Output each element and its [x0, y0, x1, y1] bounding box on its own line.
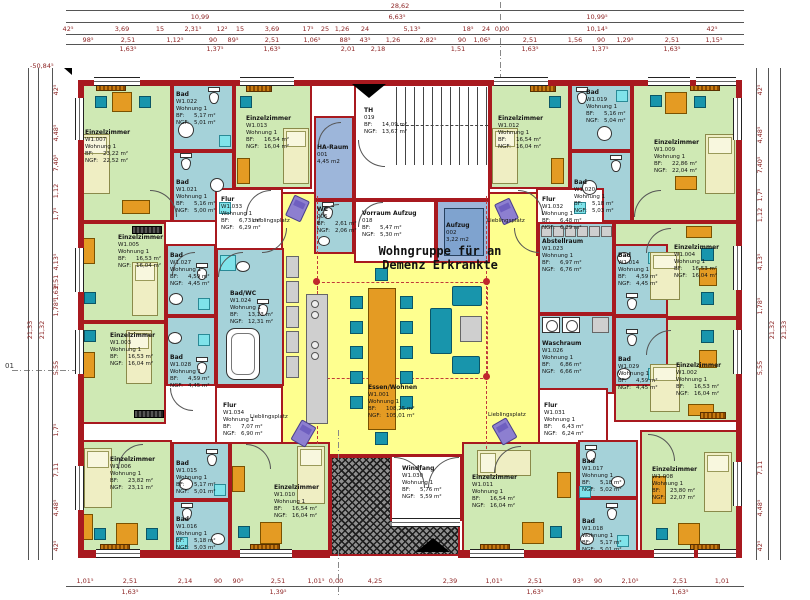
dimension-line [66, 44, 744, 45]
chair-icon [400, 321, 413, 334]
wardrobe-icon [122, 200, 150, 214]
lieblingsplatz-label: Lieblingsplatz [252, 218, 290, 224]
room-label: Aufzug0023,22 m2 [446, 222, 470, 244]
room-label-line: Wohnung 1 [230, 305, 273, 312]
room-label-line: 3,22 m2 [446, 237, 470, 244]
cooktop-icon [311, 300, 319, 308]
area-key: NGF: [544, 431, 558, 438]
shelf-icon [286, 331, 299, 353]
cooktop-icon [311, 352, 319, 360]
shelf-icon [601, 226, 612, 237]
room-label-line: Einzelzimmer [110, 456, 155, 464]
room-label-line: NGF:13,67 m² [364, 129, 407, 136]
dimension-text: 2,31⁵ [184, 25, 201, 33]
radiator-icon [700, 412, 726, 419]
room-label-line: NGF:5,00 m² [176, 208, 216, 215]
area-value: 5,01 m² [194, 120, 216, 127]
dimension-text: 3,69 [265, 25, 279, 33]
dimension-text: 10,99 [191, 13, 210, 21]
dimension-text: 1,06⁵ [473, 36, 490, 44]
room-label: WC006BF:2,61 m²NGF:2,06 m² [317, 206, 357, 235]
washing-machine-icon [542, 317, 560, 333]
room-label-line: NGF:105,01 m² [368, 413, 417, 420]
area-key: NGF: [176, 120, 190, 127]
room-label-line: Wohnung 1 [472, 489, 517, 496]
room-label-line: NGF:16,04 m² [246, 144, 291, 151]
area-key: BF: [654, 161, 668, 168]
room-label: FlurW1.033Wohnung 1BF:6,73 m²NGF:6,29 m² [221, 196, 261, 232]
dimension-text: 42⁵ [756, 85, 764, 96]
dimension-line [66, 22, 744, 23]
area-key: NGF: [223, 431, 237, 438]
dimension-text: 1,01⁵ [76, 577, 93, 585]
level-flag-icon [64, 68, 72, 75]
dimension-text: 42⁵ [52, 541, 60, 552]
exterior-wall [78, 80, 742, 86]
shelf-icon [286, 356, 299, 378]
area-value: 22,52 m² [103, 158, 128, 165]
area-key: NGF: [472, 503, 486, 510]
area-key: BF: [170, 376, 184, 383]
room-label-line: W1.024 [230, 298, 273, 305]
room-label-line: 4,45 m2 [317, 159, 348, 166]
room-label-line: W1.008 [652, 474, 697, 481]
room-label-line: W1.019 [586, 97, 626, 104]
dimension-text: 1,7⁵ [52, 424, 60, 437]
room-label-line: Einzelzimmer [676, 362, 721, 370]
area-key: BF: [110, 354, 124, 361]
dimension-text: 2,51 [528, 577, 542, 585]
room-label-line: NGF:16,04 m² [498, 144, 543, 151]
dimension-text: 2,51 [271, 577, 285, 585]
room-label-line: Flur [544, 402, 584, 410]
room-label-line: TH [364, 107, 407, 115]
chair-icon [375, 432, 388, 445]
sink-icon [318, 236, 330, 246]
dimension-text: 90 [594, 577, 602, 585]
column [483, 373, 490, 380]
axis-line [500, 2, 501, 82]
room-label-line: W1.033 [221, 204, 261, 211]
room-label-line: Bad/WC [230, 290, 273, 298]
dimension-text: 90 [214, 577, 222, 585]
room-label: Essen/WohnenW1.001Wohnung 1BF:108,25 m²N… [368, 384, 417, 420]
room-label-line: NGF:12,31 m² [230, 319, 273, 326]
room-label: EinzelzimmerW1.012Wohnung 1BF:16,54 m²NG… [498, 115, 543, 151]
room-label-line: NGF:4,45 m² [618, 281, 658, 288]
room-label-line: W1.020 [574, 187, 614, 194]
dimension-text: 1,63⁵ [526, 588, 543, 596]
room-label-line: NGF:16,04 m² [110, 361, 155, 368]
room-label-line: NGF:5,59 m² [402, 494, 442, 501]
room-label-line: Bad [176, 179, 216, 187]
area-value: 5,03 m² [592, 208, 614, 215]
area-key: NGF: [652, 495, 666, 502]
area-key: NGF: [674, 273, 688, 280]
area-key: NGF: [654, 168, 668, 175]
room-label-line: Einzelzimmer [652, 466, 697, 474]
dimension-text: 24 [361, 25, 369, 33]
room-label: EinzelzimmerW1.003Wohnung 1BF:16,53 m²NG… [110, 332, 155, 368]
room-label: Bad/WCW1.024Wohnung 1BF:13,13 m²NGF:12,3… [230, 290, 273, 326]
room-label: HA-Raum0014,45 m2 [317, 144, 348, 166]
dimension-text: 2,51 [265, 36, 279, 44]
area-value: 12,31 m² [248, 319, 273, 326]
area-value: 16,04 m² [292, 513, 317, 520]
area-value: 6,90 m² [241, 431, 263, 438]
area-key: NGF: [362, 232, 376, 239]
chair-icon [656, 528, 668, 540]
dimension-text: 21,33 [780, 321, 788, 340]
room-label-line: Wohnung 1 [674, 259, 719, 266]
room-label-line: HA-Raum [317, 144, 348, 152]
area-value: 105,01 m² [386, 413, 415, 420]
area-key: BF: [402, 487, 416, 494]
room-label-line: Bad [170, 354, 210, 362]
dimension-text: 88⁵ [340, 36, 351, 44]
wardrobe-icon [237, 158, 250, 184]
dimension-text: 15 [156, 25, 164, 33]
area-value: 22,07 m² [670, 495, 695, 502]
dimension-text: 6,63⁵ [388, 13, 405, 21]
dimension-text: 4,13⁵ [52, 253, 60, 270]
room-label: Vorraum Aufzug018BF:5,47 m²NGF:5,30 m² [362, 210, 417, 239]
dimension-text: 1,63⁵ [52, 283, 60, 300]
area-key: NGF: [176, 489, 190, 496]
room-label-line: Wohnung 1 [176, 194, 216, 201]
area-key: BF: [544, 424, 558, 431]
chair-icon [139, 96, 151, 108]
wardrobe-icon [116, 523, 138, 545]
window-icon [75, 330, 84, 374]
area-key: NGF: [246, 144, 260, 151]
chair-icon [549, 96, 561, 108]
area-key: BF: [110, 478, 124, 485]
room-label: BadW1.027Wohnung 1BF:4,59 m²NGF:4,45 m² [170, 252, 210, 288]
dimension-text: 90 [458, 36, 466, 44]
dimension-text: 90⁵ [233, 577, 244, 585]
room-label-line: W1.013 [246, 123, 291, 130]
dimension-text: 2,51 [123, 577, 137, 585]
chair-icon [95, 96, 107, 108]
area-key: NGF: [110, 485, 124, 492]
dimension-line [780, 68, 781, 560]
dimension-text: 1,37⁵ [591, 45, 608, 53]
window-icon [494, 77, 548, 86]
dimension-text: 17⁵ [303, 25, 314, 33]
chair-icon [84, 330, 96, 342]
room-label-line: Vorraum Aufzug [362, 210, 417, 218]
area-value: 4,45 m² [636, 281, 658, 288]
shower-icon [219, 135, 231, 147]
area-key: NGF: [542, 267, 556, 274]
shelf-icon [286, 256, 299, 278]
window-icon [733, 246, 742, 290]
room-label-line: Wohnung 1 [176, 106, 216, 113]
room-label-line: NGF:6,29 m² [542, 225, 582, 232]
dimension-text: 42⁵ [52, 85, 60, 96]
room-label-line: Bad [176, 91, 216, 99]
dimension-text: 10,14⁵ [586, 25, 607, 33]
area-value: 5,47 m² [380, 225, 402, 232]
window-icon [75, 98, 84, 140]
area-value: 16,04 m² [264, 144, 289, 151]
column [483, 278, 490, 285]
area-key: NGF: [618, 385, 632, 392]
area-value: 4,45 m² [188, 281, 210, 288]
room-label-line: Wohnung 1 [110, 347, 155, 354]
chair-icon [350, 346, 363, 359]
room-label: FlurW1.034Wohnung 1BF:7,07 m²NGF:6,90 m² [223, 402, 263, 438]
room-label-line: Abstellraum [542, 238, 583, 246]
sideboard-icon [134, 410, 164, 418]
window-icon [470, 549, 524, 558]
wardrobe-icon [232, 466, 245, 492]
area-key: BF: [498, 137, 512, 144]
dimension-text: 1,26 [335, 25, 349, 33]
axis-mark: 01 [5, 362, 14, 370]
area-key: BF: [176, 538, 190, 545]
area-key: BF: [223, 424, 237, 431]
dimension-text: 90 [597, 36, 605, 44]
area-key: BF: [542, 218, 556, 225]
area-key: BF: [221, 218, 235, 225]
room-label-line: W1.032 [542, 204, 582, 211]
chair-icon [701, 330, 714, 343]
dimension-text: 1,63⁵ [263, 45, 280, 53]
chair-icon [350, 321, 363, 334]
room-label-line: W1.002 [676, 370, 721, 377]
entrance-arrow-icon [416, 538, 450, 552]
area-value: 5,30 m² [380, 232, 402, 239]
room-label-line: W1.031 [544, 410, 584, 417]
room-label: WaschraumW1.026Wohnung 1BF:6,86 m²NGF:6,… [542, 340, 582, 376]
area-value: 16,04 m² [516, 144, 541, 151]
dimension-text: 4,48⁵ [756, 499, 764, 516]
dimension-text: 1,63⁵ [663, 45, 680, 53]
dimension-line [66, 34, 744, 35]
room-label-line: Essen/Wohnen [368, 384, 417, 392]
area-value: 6,29 m² [560, 225, 582, 232]
room-label-line: NGF:16,04 m² [472, 503, 517, 510]
dimension-text: 2,14 [178, 577, 192, 585]
room-label-line: W1.001 [368, 392, 417, 399]
area-key: NGF: [368, 413, 382, 420]
area-key: BF: [542, 260, 556, 267]
area-key: BF: [368, 406, 382, 413]
sideboard-icon [132, 226, 162, 234]
area-key: NGF: [230, 319, 244, 326]
shower-icon [198, 298, 210, 310]
room-label-line: W1.026 [542, 348, 582, 355]
window-icon [733, 462, 742, 506]
chair-icon [240, 96, 252, 108]
sofa-icon [452, 286, 482, 306]
lieblingsplatz-label: Lieblingsplatz [250, 414, 288, 420]
area-key: NGF: [586, 118, 600, 125]
stairs-icon [396, 87, 488, 165]
room-label-line: Wohnung 1 [618, 267, 658, 274]
room-label-line: Wohnung 1 [402, 480, 442, 487]
room-label-line: Wohnung 1 [274, 499, 319, 506]
room-label: EinzelzimmerW1.005Wohnung 1BF:16,53 m²NG… [118, 234, 163, 270]
room-label-line: Einzelzimmer [85, 129, 130, 137]
room-label-line: W1.005 [118, 242, 163, 249]
chair-icon [400, 371, 413, 384]
area-value: 5,02 m² [600, 487, 622, 494]
area-value: 23,11 m² [128, 485, 153, 492]
room-label-line: NGF:5,04 m² [586, 118, 626, 125]
chair-icon [94, 528, 106, 540]
window-icon [240, 77, 294, 86]
room-label-line: Wohnung 1 [542, 211, 582, 218]
window-icon [96, 549, 140, 558]
area-key: BF: [176, 482, 190, 489]
room-label-line: W1.010 [274, 492, 319, 499]
dimension-text: 1,12 [756, 208, 764, 222]
room-label-line: Windfang [402, 465, 442, 473]
room-label-line: Bad [176, 516, 216, 524]
dimension-text: 2,10⁵ [621, 577, 638, 585]
area-key: NGF: [618, 281, 632, 288]
chair-icon [400, 296, 413, 309]
room-label-line: W1.027 [170, 260, 210, 267]
area-value: 6,66 m² [560, 369, 582, 376]
room-label-line: 002 [446, 230, 470, 237]
area-key: BF: [85, 151, 99, 158]
room-label-line: W1.021 [176, 187, 216, 194]
room-label: EinzelzimmerW1.010Wohnung 1BF:16,54 m²NG… [274, 484, 319, 520]
area-value: 16,04 m² [490, 503, 515, 510]
dimension-text: 5,55 [52, 361, 60, 375]
chair-icon [701, 292, 714, 305]
room-label-line: Wohnung 1 [498, 130, 543, 137]
room-label: BadW1.021Wohnung 1BF:5,16 m²NGF:5,00 m² [176, 179, 216, 215]
dimension-text: 1,63⁵ [521, 45, 538, 53]
room-label-line: Flur [542, 196, 582, 204]
dimension-text: 1,7⁵ [52, 208, 60, 221]
dimension-text: 2,18 [371, 45, 385, 53]
dimension-text: 93⁵ [573, 577, 584, 585]
bed-icon [704, 452, 732, 512]
room-label-line: Wohnung 1 [544, 417, 584, 424]
room-label-line: NGF:5,01 m² [176, 489, 216, 496]
area-key: BF: [176, 113, 190, 120]
area-value: 16,04 m² [136, 263, 161, 270]
area-key: NGF: [118, 263, 132, 270]
room-label: AbstellraumW1.023Wohnung 1BF:6,97 m²NGF:… [542, 238, 583, 274]
dimension-line [66, 586, 744, 587]
room-label-line: Bad [586, 89, 626, 97]
room-label-line: NGF:16,04 m² [674, 273, 719, 280]
area-value: 14,09 m² [382, 122, 407, 129]
washing-machine-icon [562, 317, 580, 333]
room-label-line: W1.028 [170, 362, 210, 369]
room-label-line: W1.030 [402, 473, 442, 480]
room-label-line: Bad [176, 460, 216, 468]
level-mark: -50,84⁵ [30, 62, 54, 70]
area-key: BF: [542, 362, 556, 369]
window-icon [240, 549, 292, 558]
room-label-line: NGF:4,45 m² [618, 385, 658, 392]
room-label-line: Einzelzimmer [118, 234, 163, 242]
dimension-text: 7,11 [756, 461, 764, 475]
dimension-text: 2,01 [341, 45, 355, 53]
area-key: NGF: [542, 369, 556, 376]
area-key: NGF: [317, 228, 331, 235]
window-icon [733, 330, 742, 374]
room-label: EinzelzimmerW1.004Wohnung 1BF:16,53 m²NG… [674, 244, 719, 280]
area-key: BF: [118, 256, 132, 263]
column [313, 278, 320, 285]
area-key: BF: [652, 488, 666, 495]
dimension-text: 42⁵ [63, 25, 74, 33]
bed-icon [84, 448, 112, 508]
chair-icon [350, 396, 363, 409]
room-label: FlurW1.032Wohnung 1BF:6,48 m²NGF:6,29 m² [542, 196, 582, 232]
room-label-line: W1.016 [176, 524, 216, 531]
room-label: TH019BF:14,09 m²NGF:13,67 m² [364, 107, 407, 136]
room-label: BadW1.019Wohnung 1BF:5,16 m²NGF:5,04 m² [586, 89, 626, 125]
room-label-line: W1.014 [618, 260, 658, 267]
room-label-line: Flur [223, 402, 263, 410]
dimension-text: 1,63⁵ [119, 45, 136, 53]
area-key: BF: [676, 384, 690, 391]
room-label-line: Wohnung 1 [176, 475, 216, 482]
room-label-line: W1.003 [110, 340, 155, 347]
dimension-text: 1,78⁵ [52, 299, 60, 316]
dimension-text: 15 [236, 25, 244, 33]
wardrobe-icon [678, 523, 700, 545]
room-label-line: WC [317, 206, 357, 214]
lieblingsplatz-label: Lieblingsplatz [487, 218, 525, 224]
area-key: NGF: [402, 494, 416, 501]
room-label-line: Wohnung 1 [110, 471, 155, 478]
wardrobe-icon [260, 522, 282, 544]
area-key: NGF: [582, 487, 596, 494]
cooktop-icon [311, 341, 319, 349]
area-key: NGF: [498, 144, 512, 151]
axis-line [338, 430, 339, 598]
dimension-text: 1,78⁵ [756, 297, 764, 314]
room-label-line: Flur [221, 196, 261, 204]
shelf-icon [460, 316, 482, 342]
dimension-text: 7,11 [52, 463, 60, 477]
area-value: 6,29 m² [239, 225, 261, 232]
dimension-text: 4,48⁵ [52, 499, 60, 516]
room-label-line: NGF:5,02 m² [582, 487, 622, 494]
area-value: 5,59 m² [420, 494, 442, 501]
dimension-text: 1,7⁵ [756, 189, 764, 202]
dimension-text: 1,01 [715, 577, 729, 585]
plan-title: Wohngruppe für an Demenz Erkrankte [340, 245, 540, 273]
area-key: NGF: [110, 361, 124, 368]
area-key: NGF: [676, 391, 690, 398]
sofa-icon [452, 356, 480, 374]
room-label: FlurW1.031Wohnung 1BF:6,43 m²NGF:6,24 m² [544, 402, 584, 438]
dimension-text: 18⁵ [463, 25, 474, 33]
room-label-line: Wohnung 1 [618, 371, 658, 378]
area-key: BF: [170, 274, 184, 281]
room-label-line: NGF:6,24 m² [544, 431, 584, 438]
room-label-line: 019 [364, 115, 407, 122]
dimension-text: 4,48⁵ [756, 126, 764, 143]
area-value: 4,45 m² [188, 383, 210, 390]
area-key: NGF: [274, 513, 288, 520]
room-label-line: 006 [317, 214, 357, 221]
room-label-line: Einzelzimmer [654, 139, 699, 147]
area-key: NGF: [85, 158, 99, 165]
